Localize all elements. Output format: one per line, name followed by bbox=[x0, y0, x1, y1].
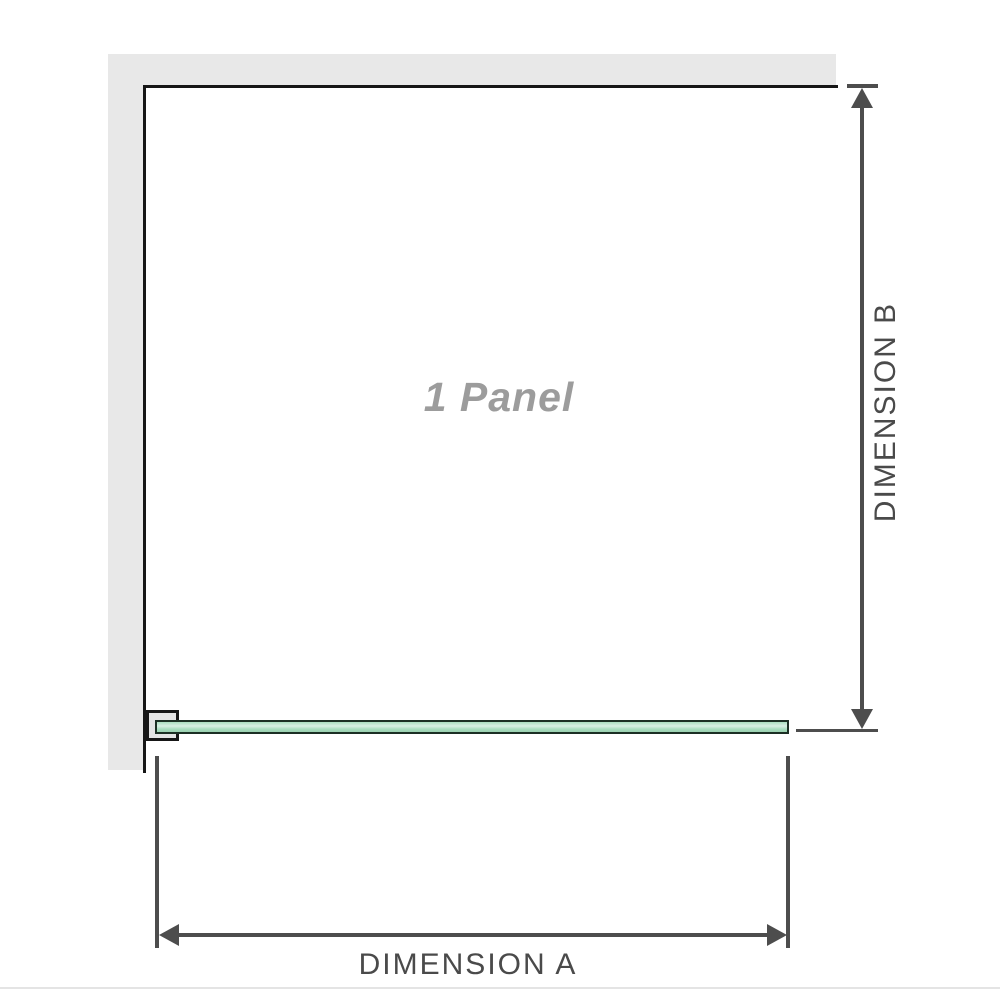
dimension-b-arrow-shaft bbox=[860, 95, 864, 725]
arrow-up-icon bbox=[851, 88, 873, 108]
enclosure-top-edge bbox=[143, 85, 838, 88]
dimension-b-bottom-tick bbox=[796, 729, 878, 732]
arrow-right-icon bbox=[767, 924, 787, 946]
glass-panel bbox=[155, 720, 789, 734]
arrow-down-icon bbox=[851, 709, 873, 729]
wall-top bbox=[108, 54, 836, 86]
panel-count-label: 1 Panel bbox=[299, 372, 699, 422]
enclosure-left-edge bbox=[143, 85, 146, 773]
dimension-a-right-extension-line bbox=[786, 756, 790, 948]
dimension-a-label: DIMENSION A bbox=[268, 948, 668, 982]
panel-dimension-diagram: 1 Panel DIMENSION B DIMENSION A bbox=[0, 0, 1000, 1000]
dimension-a-arrow-shaft bbox=[163, 933, 783, 937]
bottom-divider bbox=[0, 987, 1000, 989]
arrow-left-icon bbox=[159, 924, 179, 946]
dimension-a-left-extension-line bbox=[155, 756, 159, 948]
dimension-b-label: DIMENSION B bbox=[871, 262, 901, 562]
wall-left bbox=[108, 54, 143, 770]
